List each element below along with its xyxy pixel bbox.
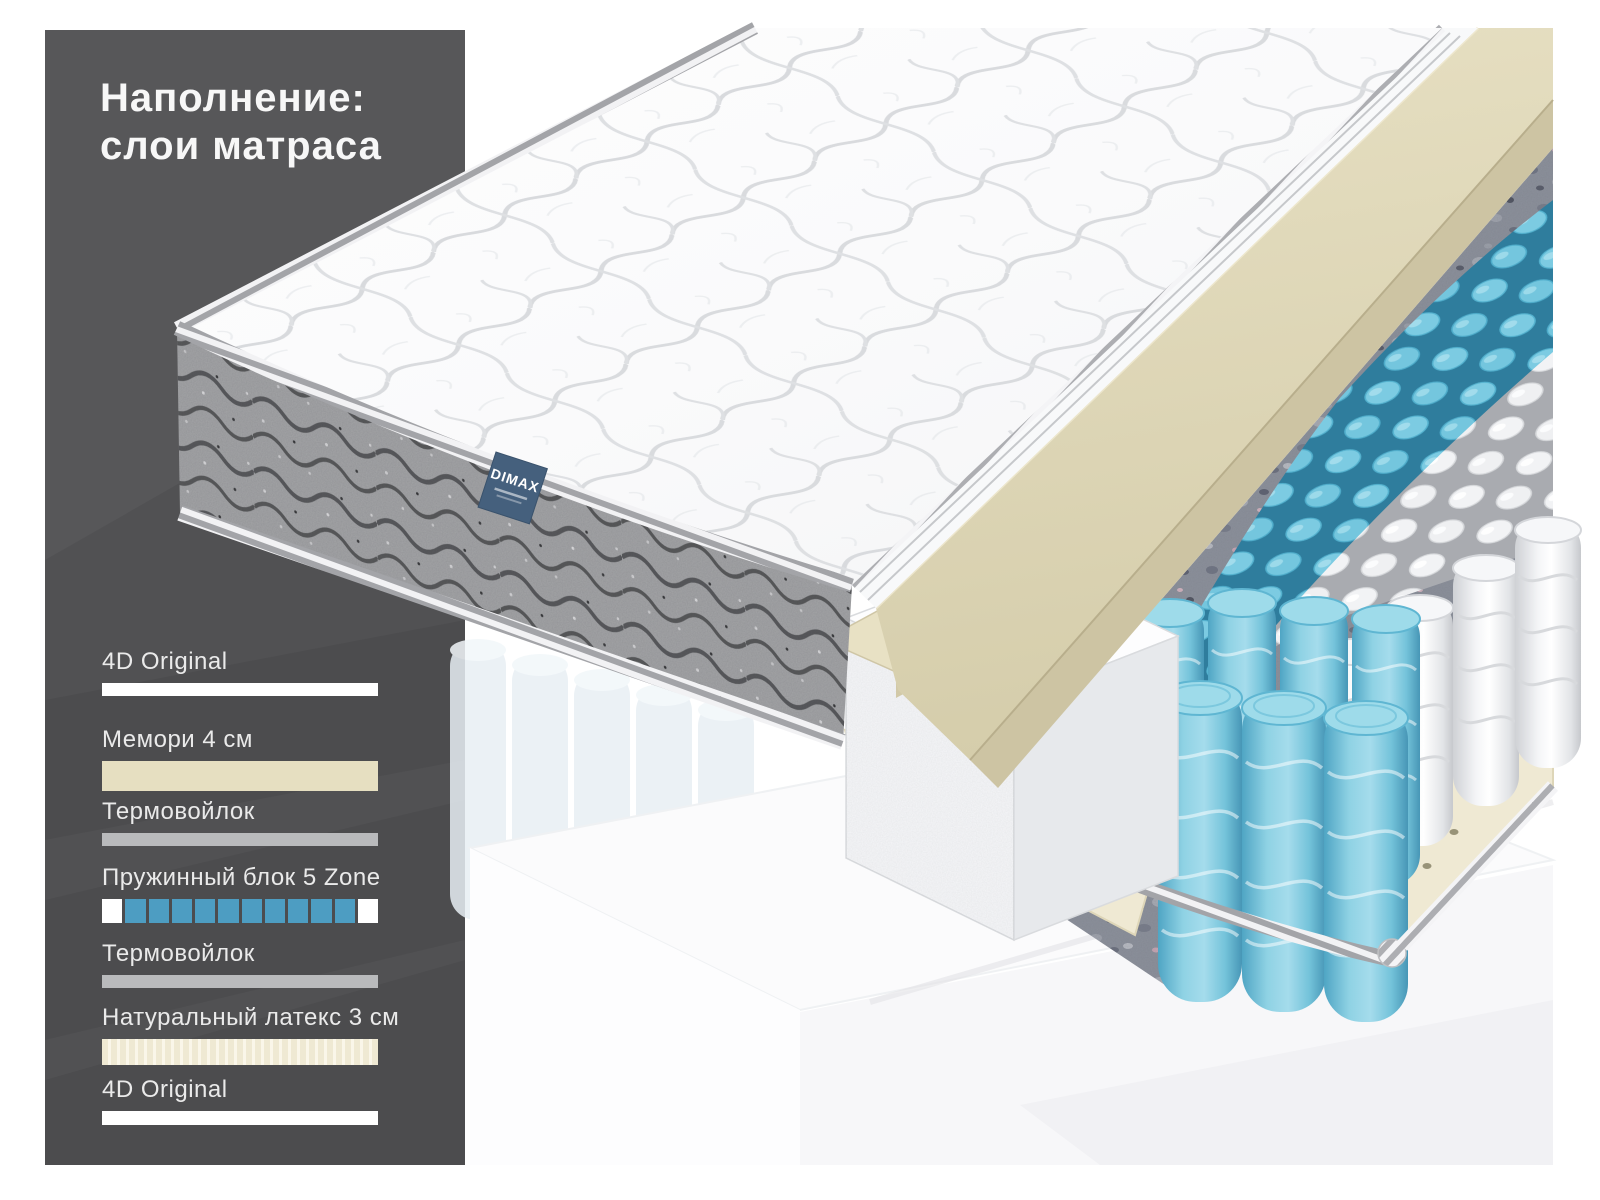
legend-item-memory: Мемори 4 см (102, 726, 378, 791)
spring-zone-cell (125, 899, 145, 923)
legend-item-thermofelt-upper: Термовойлок (102, 798, 378, 846)
legend-label: Термовойлок (102, 940, 378, 968)
legend-item-4d-original-top: 4D Original (102, 648, 378, 696)
legend-swatch-thermofelt-lower (102, 975, 378, 988)
infographic-page: DIMAX Наполнение: слои матраса 4D Origin… (0, 0, 1600, 1200)
spring-zone-cell (242, 899, 262, 923)
legend-item-thermofelt-lower: Термовойлок (102, 940, 378, 988)
page-title-line1: Наполнение: (100, 74, 382, 122)
legend-swatch-latex (102, 1039, 378, 1065)
legend-label: 4D Original (102, 1076, 378, 1104)
legend-swatch-spring-block (102, 899, 378, 923)
spring-zone-cell (358, 899, 378, 923)
legend-label: Натуральный латекс 3 см (102, 1004, 378, 1032)
legend-label: Пружинный блок 5 Zone (102, 864, 378, 892)
legend-swatch-thermofelt-upper (102, 833, 378, 846)
legend-item-spring-block: Пружинный блок 5 Zone (102, 864, 378, 923)
spring-zone-cell (218, 899, 238, 923)
spring-zone-cell (149, 899, 169, 923)
spring-zone-cell (102, 899, 122, 923)
legend-item-4d-original-bottom: 4D Original (102, 1076, 378, 1125)
spring-zone-cell (311, 899, 331, 923)
spring-zone-cell (195, 899, 215, 923)
spring-zone-cell (172, 899, 192, 923)
spring-zone-cell (288, 899, 308, 923)
legend-swatch-4d-original-bottom (102, 1111, 378, 1125)
legend-label: Мемори 4 см (102, 726, 378, 754)
spring-zone-cell (335, 899, 355, 923)
legend-swatch-4d-original-top (102, 683, 378, 696)
page-title: Наполнение: слои матраса (100, 74, 382, 170)
spring-zone-cell (265, 899, 285, 923)
legend-item-latex: Натуральный латекс 3 см (102, 1004, 378, 1065)
legend-label: 4D Original (102, 648, 378, 676)
legend-label: Термовойлок (102, 798, 378, 826)
legend-swatch-memory (102, 761, 378, 791)
page-title-line2: слои матраса (100, 122, 382, 170)
